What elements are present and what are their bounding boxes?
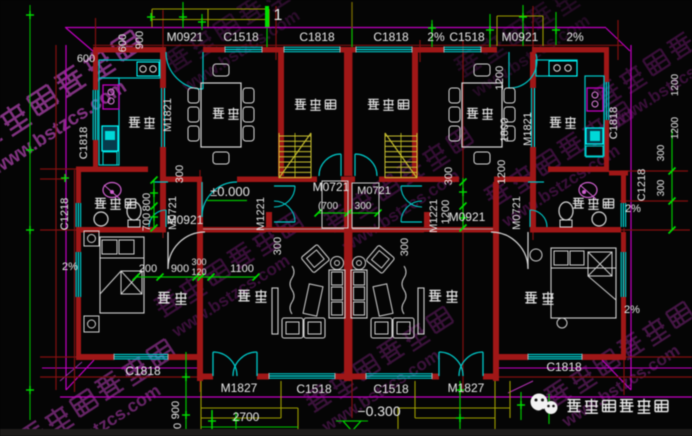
svg-text:C1818: C1818	[546, 360, 582, 374]
svg-text:M1221: M1221	[255, 197, 267, 231]
svg-text:1200: 1200	[496, 160, 508, 184]
svg-text:C1518: C1518	[449, 30, 485, 44]
svg-text:M0921: M0921	[449, 210, 486, 224]
svg-text:900: 900	[134, 31, 146, 49]
svg-text:C1818: C1818	[608, 107, 620, 139]
svg-text:200: 200	[139, 263, 157, 275]
svg-text:M1827: M1827	[221, 381, 258, 395]
svg-text:300: 300	[656, 179, 667, 196]
svg-text:2%: 2%	[625, 203, 641, 215]
svg-text:1200: 1200	[670, 73, 681, 96]
svg-text:300: 300	[443, 167, 455, 185]
svg-text:M0721: M0721	[357, 185, 391, 197]
svg-text:M1821: M1821	[522, 112, 534, 146]
svg-text:300: 300	[399, 238, 411, 256]
svg-text:C1818: C1818	[78, 127, 90, 159]
svg-text:300: 300	[272, 237, 284, 255]
svg-text:M0721: M0721	[313, 180, 350, 194]
svg-text:C1518: C1518	[223, 30, 259, 44]
svg-text:600: 600	[77, 53, 95, 65]
svg-text:C1218: C1218	[59, 198, 71, 230]
svg-text:C1818: C1818	[125, 364, 161, 378]
svg-text:M0921: M0921	[167, 213, 204, 227]
svg-text:900: 900	[170, 401, 182, 419]
svg-text:C1518: C1518	[373, 382, 409, 396]
svg-text:1100: 1100	[230, 263, 254, 275]
svg-text:300: 300	[174, 165, 186, 183]
svg-text:−0.300: −0.300	[357, 403, 400, 419]
svg-text:300: 300	[656, 144, 667, 161]
svg-text:±0.000: ±0.000	[210, 184, 250, 199]
svg-text:M1821: M1821	[162, 98, 174, 132]
svg-text:600: 600	[117, 34, 129, 52]
svg-text:C1818: C1818	[373, 30, 409, 44]
svg-text:700: 700	[141, 213, 153, 231]
svg-text:2700: 2700	[233, 410, 260, 424]
svg-text:900: 900	[171, 263, 189, 275]
svg-text:1200: 1200	[670, 116, 681, 139]
svg-text:300: 300	[191, 257, 206, 267]
svg-text:2%: 2%	[566, 30, 584, 44]
svg-text:2%: 2%	[62, 261, 78, 273]
svg-text:1800: 1800	[499, 118, 511, 142]
svg-text:1: 1	[274, 7, 283, 24]
svg-text:M0721: M0721	[511, 196, 523, 230]
svg-text:C1518: C1518	[296, 382, 332, 396]
svg-text:2%: 2%	[427, 30, 445, 44]
svg-text:120: 120	[191, 267, 206, 277]
svg-text:M1827: M1827	[448, 381, 485, 395]
svg-text:300: 300	[355, 201, 372, 212]
svg-text:(700: (700	[318, 201, 338, 212]
svg-text:800: 800	[141, 193, 153, 211]
svg-text:M0921: M0921	[502, 30, 539, 44]
svg-text:1200: 1200	[494, 66, 506, 90]
svg-text:M0921: M0921	[167, 30, 204, 44]
svg-text:C1218: C1218	[636, 169, 648, 201]
svg-text:M1221: M1221	[428, 199, 440, 233]
svg-text:C1818: C1818	[299, 30, 335, 44]
svg-text:2%: 2%	[624, 304, 640, 316]
